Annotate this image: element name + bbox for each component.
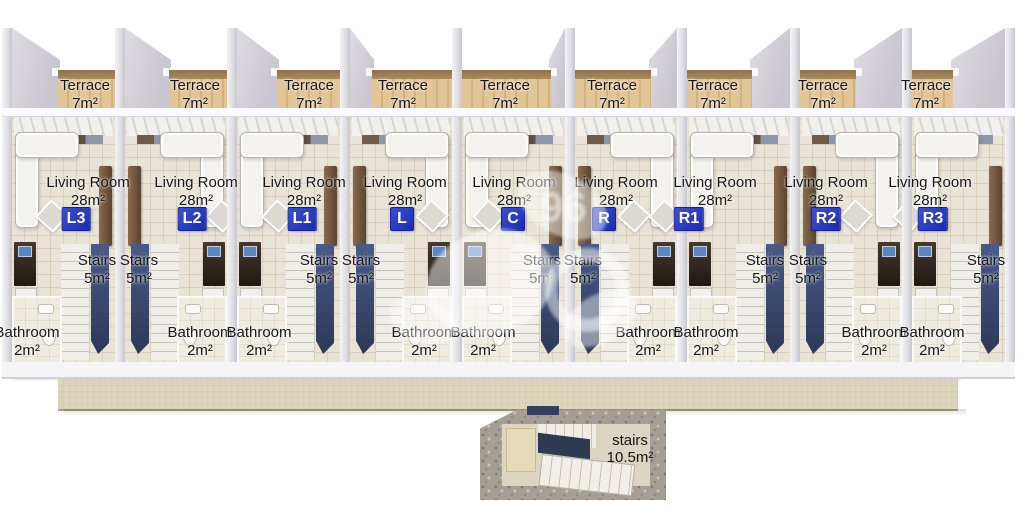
terrace-label: Terrace7m² <box>688 77 738 113</box>
terrace-side-wall <box>951 28 1005 112</box>
sofa <box>610 132 674 158</box>
bathroom-label: Bathroom2m² <box>0 324 60 360</box>
basement-stairs-area: 10.5m² <box>607 449 654 466</box>
sink <box>263 304 279 314</box>
terrace-label: Terrace7m² <box>587 77 637 113</box>
unit: Terrace7m² Living Room28m² L Stairs5m² B… <box>350 28 452 378</box>
appliance-screen <box>18 246 32 257</box>
bathroom-label: Bathroom2m² <box>167 324 232 360</box>
appliance-screen <box>882 246 896 257</box>
terrace-label: Terrace7m² <box>170 77 220 113</box>
bathroom-label: Bathroom2m² <box>841 324 906 360</box>
stairs-label: Stairs5m² <box>967 252 1005 288</box>
unit: Terrace7m² Living Room28m² R2 Stairs5m² … <box>800 28 902 378</box>
terrace-side-wall <box>237 28 279 112</box>
bathroom-label: Bathroom2m² <box>615 324 680 360</box>
stairs-label: Stairs5m² <box>564 252 602 288</box>
terrace-label: Terrace7m² <box>798 77 848 113</box>
sink <box>38 304 54 314</box>
basement-block <box>506 428 536 472</box>
stairs-label: Stairs5m² <box>300 252 338 288</box>
basement-stairs-label: stairs 10.5m² <box>607 432 654 466</box>
stairs-label: Stairs5m² <box>78 252 116 288</box>
living-room-label: Living Room28m² <box>262 174 345 210</box>
unit-badge: C <box>501 207 525 231</box>
unit: Terrace7m² Living Room28m² R3 Stairs5m² … <box>912 28 1005 378</box>
appliance-screen <box>243 246 257 257</box>
sink <box>938 304 954 314</box>
living-room-label: Living Room28m² <box>784 174 867 210</box>
terrace-side-wall <box>12 28 60 112</box>
sink <box>713 304 729 314</box>
unit-badge: L <box>390 207 414 231</box>
floor-plan: Terrace7m² Living Room28m² L3 Stairs5m² … <box>0 0 1024 528</box>
kitchen-unit <box>14 242 36 286</box>
terrace-label: Terrace7m² <box>480 77 530 113</box>
terrace-side-wall <box>854 28 902 112</box>
sofa <box>240 132 304 158</box>
unit: Terrace7m² Living Room28m² R1 Stairs5m² … <box>687 28 790 378</box>
unit-badge: L2 <box>178 207 207 231</box>
kitchen-unit <box>689 242 711 286</box>
kitchen-unit <box>464 242 486 286</box>
terrace-label: Terrace7m² <box>284 77 334 113</box>
unit-badge: R <box>592 207 616 231</box>
basement-stairs: stairs 10.5m² <box>480 406 666 500</box>
unit: Terrace7m² Living Room28m² L1 Stairs5m² … <box>237 28 340 378</box>
appliance-screen <box>657 246 671 257</box>
unit-badge: L3 <box>62 207 91 231</box>
unit-badge: R1 <box>674 207 704 231</box>
terrace-side-wall <box>750 28 790 112</box>
sofa <box>835 132 899 158</box>
unit: Terrace7m² Living Room28m² C Stairs5m² B… <box>462 28 565 378</box>
kitchen-unit <box>653 242 675 286</box>
living-room-label: Living Room28m² <box>363 174 446 210</box>
bathroom-label: Bathroom2m² <box>899 324 964 360</box>
sofa <box>690 132 754 158</box>
terrace-side-wall <box>649 28 677 112</box>
unit-badge: L1 <box>288 207 317 231</box>
kitchen-unit <box>428 242 450 286</box>
terrace-label: Terrace7m² <box>378 77 428 113</box>
unit-badge: R2 <box>811 207 841 231</box>
sofa <box>465 132 529 158</box>
terrace-label: Terrace7m² <box>60 77 110 113</box>
kitchen-unit <box>914 242 936 286</box>
unit-badge: R3 <box>918 207 948 231</box>
stairs-label: Stairs5m² <box>789 252 827 288</box>
sink <box>635 304 651 314</box>
living-room-label: Living Room28m² <box>46 174 129 210</box>
appliance-screen <box>693 246 707 257</box>
living-room-label: Living Room28m² <box>888 174 971 210</box>
sofa <box>915 132 979 158</box>
basement-landing <box>527 406 559 415</box>
sofa <box>385 132 449 158</box>
appliance-screen <box>207 246 221 257</box>
kitchen-unit <box>878 242 900 286</box>
sink <box>185 304 201 314</box>
living-room-label: Living Room28m² <box>673 174 756 210</box>
bathroom-label: Bathroom2m² <box>673 324 738 360</box>
terrace-side-wall <box>350 28 374 112</box>
stairs-label: Stairs5m² <box>523 252 561 288</box>
sink <box>488 304 504 314</box>
basement-stairs-name: stairs <box>607 432 654 449</box>
terrace-label: Terrace7m² <box>901 77 951 113</box>
sink <box>860 304 876 314</box>
living-room-label: Living Room28m² <box>574 174 657 210</box>
appliance-screen <box>918 246 932 257</box>
sofa <box>160 132 224 158</box>
stairs-label: Stairs5m² <box>746 252 784 288</box>
unit: Terrace7m² Living Room28m² L2 Stairs5m² … <box>125 28 227 378</box>
bathroom-label: Bathroom2m² <box>391 324 456 360</box>
bathroom-label: Bathroom2m² <box>226 324 291 360</box>
party-wall <box>1005 28 1015 378</box>
appliance-screen <box>468 246 482 257</box>
stairs-label: Stairs5m² <box>120 252 158 288</box>
kitchen-unit <box>203 242 225 286</box>
terrace-side-wall <box>125 28 171 112</box>
tv-cabinet <box>989 166 1002 246</box>
tv-cabinet <box>128 166 141 246</box>
stairs-label: Stairs5m² <box>342 252 380 288</box>
kitchen-unit <box>239 242 261 286</box>
building-front-wall <box>2 362 1015 379</box>
living-room-label: Living Room28m² <box>472 174 555 210</box>
appliance-screen <box>432 246 446 257</box>
sink <box>410 304 426 314</box>
bathroom-label: Bathroom2m² <box>450 324 515 360</box>
sofa <box>15 132 79 158</box>
unit: Terrace7m² Living Room28m² L3 Stairs5m² … <box>12 28 115 378</box>
living-room-label: Living Room28m² <box>154 174 237 210</box>
terrace-side-wall <box>549 28 565 112</box>
